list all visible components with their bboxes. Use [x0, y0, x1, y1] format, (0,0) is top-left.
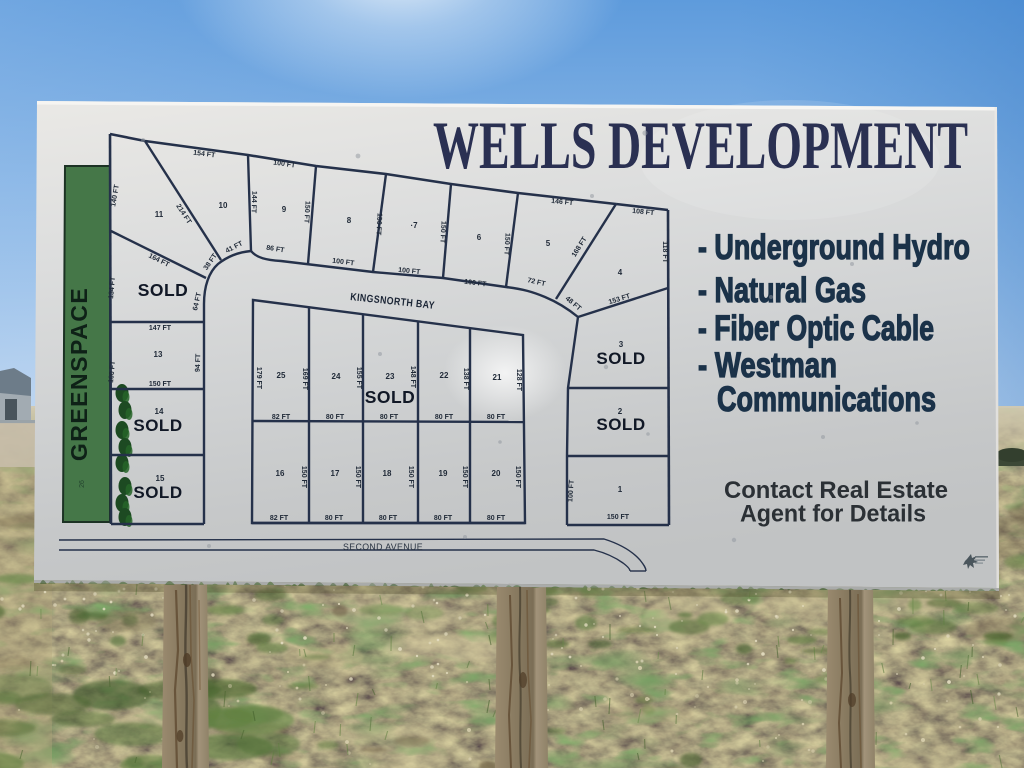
svg-text:- Natural Gas: - Natural Gas [698, 271, 866, 310]
svg-text:WELLS DEVELOPMENT: WELLS DEVELOPMENT [433, 107, 968, 183]
svg-text:GREENSPACE: GREENSPACE [66, 287, 92, 461]
svg-text:94 FT: 94 FT [195, 353, 203, 372]
svg-text:150 FT: 150 FT [302, 201, 310, 224]
svg-text:150 FT: 150 FT [149, 381, 172, 388]
svg-text:SOLD: SOLD [596, 415, 645, 434]
svg-text:150 FT: 150 FT [607, 514, 630, 521]
svg-text:80 FT: 80 FT [487, 515, 506, 522]
svg-text:26: 26 [79, 480, 86, 488]
svg-text:147 FT: 147 FT [149, 325, 172, 332]
svg-text:Communications: Communications [717, 380, 936, 419]
svg-text:20: 20 [492, 469, 501, 478]
svg-text:11: 11 [155, 210, 164, 219]
svg-text:150 FT: 150 FT [514, 466, 521, 489]
svg-text:24: 24 [332, 372, 341, 381]
svg-text:150 FT: 150 FT [300, 466, 307, 489]
svg-text:82 FT: 82 FT [270, 515, 289, 522]
svg-text:138 FT: 138 FT [462, 368, 469, 391]
svg-text:10: 10 [219, 201, 228, 210]
svg-text:80 FT: 80 FT [379, 515, 398, 522]
svg-text:150 FT: 150 FT [438, 221, 446, 244]
svg-text:8: 8 [347, 216, 352, 225]
svg-text:SOLD: SOLD [365, 387, 416, 407]
svg-text:150 FT: 150 FT [374, 213, 382, 236]
svg-text:179 FT: 179 FT [255, 367, 262, 390]
svg-text:14: 14 [155, 407, 164, 416]
svg-text:·7: ·7 [410, 221, 418, 230]
svg-text:150 FT: 150 FT [502, 233, 510, 256]
svg-text:80 FT: 80 FT [435, 414, 454, 421]
svg-text:SOLD: SOLD [133, 416, 182, 435]
svg-text:148 FT: 148 FT [409, 366, 416, 389]
svg-text:16: 16 [276, 469, 285, 478]
svg-text:169 FT: 169 FT [301, 368, 308, 391]
svg-text:1: 1 [618, 485, 623, 494]
svg-text:3: 3 [619, 340, 624, 349]
svg-text:15: 15 [156, 474, 165, 483]
svg-text:150 FT: 150 FT [354, 466, 361, 489]
svg-text:13: 13 [154, 350, 163, 359]
svg-text:80 FT: 80 FT [487, 414, 506, 421]
svg-text:150 FT: 150 FT [461, 466, 468, 489]
svg-text:80 FT: 80 FT [434, 515, 453, 522]
svg-text:21: 21 [493, 373, 502, 382]
svg-text:155 FT: 155 FT [355, 367, 362, 390]
svg-text:80 FT: 80 FT [380, 414, 399, 421]
svg-text:80 FT: 80 FT [326, 414, 345, 421]
svg-text:25: 25 [277, 371, 286, 380]
svg-text:- Fiber Optic Cable: - Fiber Optic Cable [698, 309, 934, 348]
svg-text:82 FT: 82 FT [272, 414, 291, 421]
svg-text:9: 9 [282, 205, 287, 214]
svg-text:6: 6 [477, 233, 482, 242]
svg-text:5: 5 [546, 239, 551, 248]
svg-text:80 FT: 80 FT [325, 515, 344, 522]
svg-text:17: 17 [331, 469, 340, 478]
svg-text:128 FT: 128 FT [515, 369, 522, 392]
svg-text:18: 18 [383, 469, 392, 478]
svg-text:118 FT: 118 FT [661, 241, 668, 264]
svg-text:150 FT: 150 FT [407, 466, 414, 489]
svg-text:SECOND AVENUE: SECOND AVENUE [343, 542, 423, 553]
svg-text:4: 4 [618, 268, 623, 277]
svg-text:SOLD: SOLD [138, 280, 189, 300]
svg-text:- Underground Hydro: - Underground Hydro [698, 228, 970, 267]
svg-text:SOLD: SOLD [133, 483, 182, 502]
svg-text:22: 22 [440, 371, 449, 380]
svg-text:SOLD: SOLD [596, 349, 645, 368]
svg-text:19: 19 [439, 469, 448, 478]
svg-text:23: 23 [386, 372, 395, 381]
svg-text:Agent for Details: Agent for Details [740, 501, 926, 528]
svg-text:144 FT: 144 FT [250, 191, 258, 214]
